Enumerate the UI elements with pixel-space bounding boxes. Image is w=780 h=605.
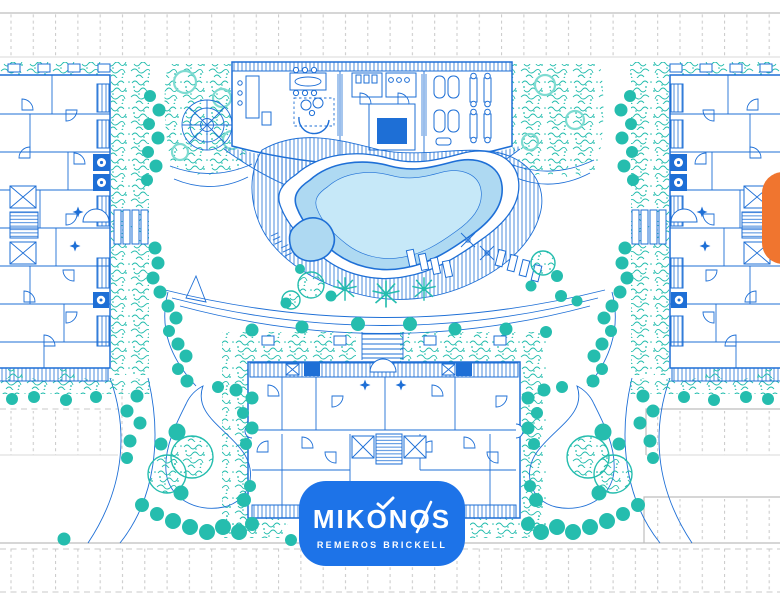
- logo-subtitle: REMEROS BRICKELL: [317, 540, 447, 550]
- stair-elevator-core: [10, 186, 38, 264]
- site-plan-page: { "logo": { "title": "MIKONOS", "subtitl…: [0, 0, 780, 605]
- specimen-tree-symbol: [182, 100, 232, 150]
- o-slash-icon: [415, 500, 433, 534]
- spa-pool: [289, 218, 334, 261]
- logo-title: MIKONOS: [313, 506, 451, 532]
- logo-badge: MIKONOS REMEROS BRICKELL: [299, 481, 465, 566]
- residential-building-left: [0, 62, 150, 406]
- entry-steps: [362, 332, 403, 360]
- residential-building-right: [630, 62, 780, 406]
- check-icon: [376, 496, 396, 510]
- orange-location-marker: [762, 172, 780, 264]
- south-entry-canopy: [370, 359, 396, 372]
- pool-area: [252, 138, 542, 300]
